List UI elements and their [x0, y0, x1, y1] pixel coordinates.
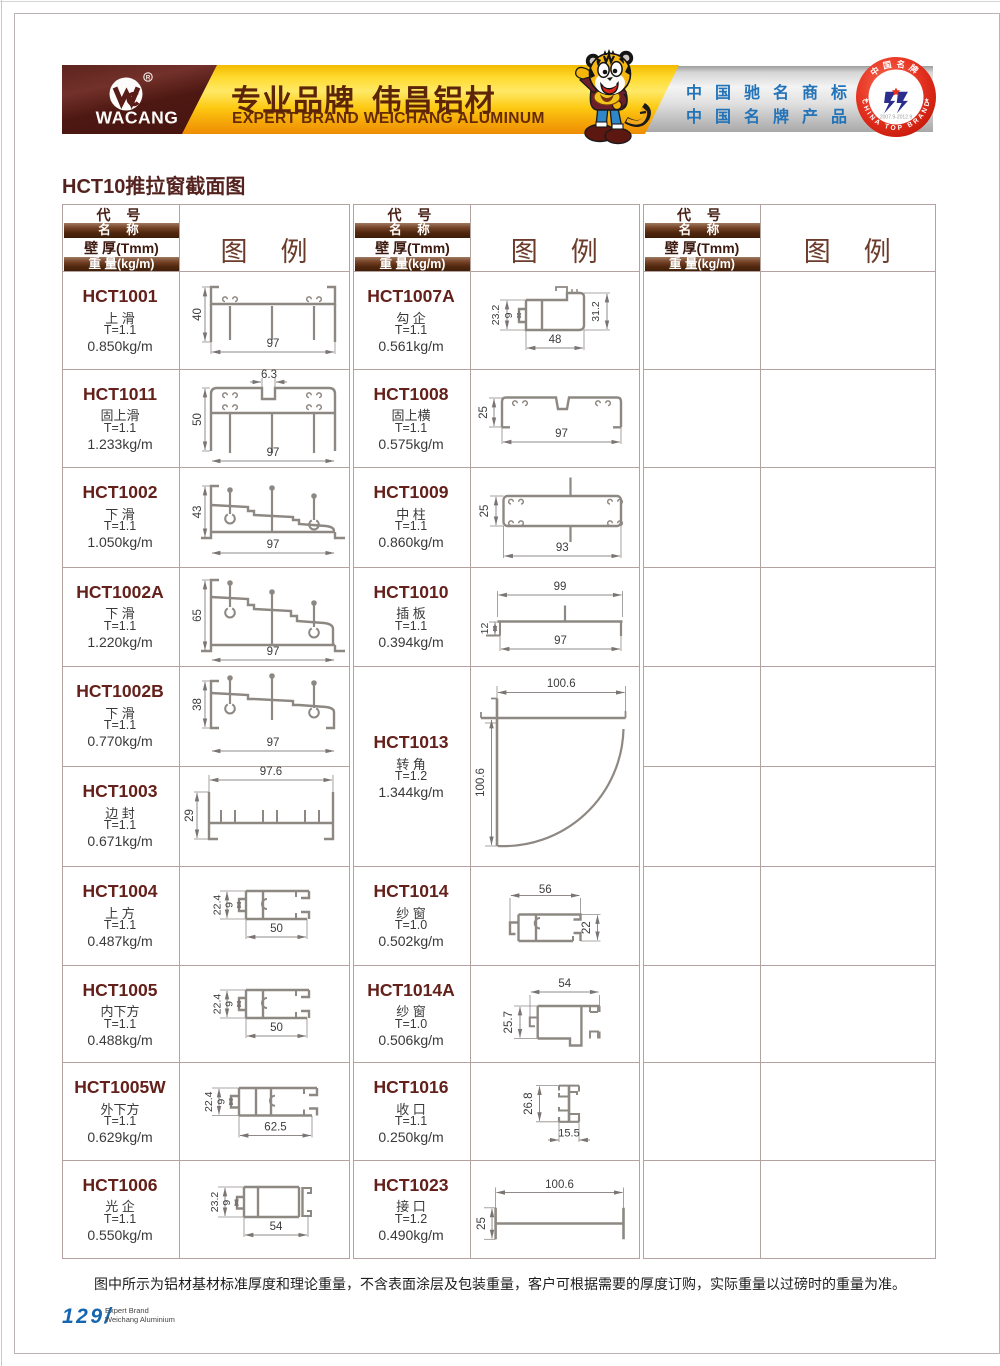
svg-text:97: 97: [267, 447, 280, 459]
svg-text:54: 54: [558, 978, 571, 990]
svg-text:2007.9-2012.9: 2007.9-2012.9: [880, 115, 912, 121]
svg-text:100.6: 100.6: [545, 1179, 574, 1191]
svg-text:15.5: 15.5: [558, 1128, 579, 1140]
svg-text:25: 25: [476, 1217, 488, 1230]
svg-text:62.5: 62.5: [264, 1122, 286, 1134]
svg-text:97: 97: [267, 338, 280, 350]
svg-text:40: 40: [192, 308, 204, 321]
svg-text:97: 97: [554, 635, 567, 647]
svg-text:31.2: 31.2: [590, 301, 602, 322]
svg-text:★: ★: [864, 97, 869, 104]
svg-text:WACANG: WACANG: [96, 108, 179, 128]
svg-text:50: 50: [270, 1022, 283, 1034]
svg-text:22.4: 22.4: [203, 1091, 215, 1112]
svg-text:R: R: [146, 75, 151, 82]
svg-text:★: ★: [924, 97, 929, 104]
svg-text:56: 56: [539, 884, 552, 896]
svg-text:6.3: 6.3: [261, 369, 277, 381]
svg-text:97: 97: [267, 646, 280, 658]
svg-text:97: 97: [267, 737, 280, 749]
svg-text:23.2: 23.2: [209, 1191, 221, 1212]
svg-text:50: 50: [270, 923, 283, 935]
svg-text:26.8: 26.8: [523, 1093, 535, 1115]
svg-text:23.2: 23.2: [490, 305, 502, 326]
svg-text:48: 48: [549, 334, 562, 346]
svg-text:9: 9: [224, 902, 236, 908]
svg-text:54: 54: [270, 1221, 283, 1233]
svg-text:22.4: 22.4: [212, 993, 224, 1014]
svg-text:100.6: 100.6: [475, 768, 487, 797]
svg-text:100.6: 100.6: [547, 678, 576, 690]
svg-text:22: 22: [581, 921, 593, 934]
svg-text:25: 25: [478, 406, 490, 419]
svg-text:9: 9: [221, 1199, 233, 1205]
svg-text:25: 25: [479, 505, 491, 518]
svg-text:38: 38: [192, 698, 204, 711]
svg-text:9: 9: [216, 1099, 228, 1105]
svg-text:97: 97: [267, 539, 280, 551]
svg-text:9: 9: [224, 1000, 236, 1006]
svg-text:99: 99: [554, 581, 567, 593]
svg-text:12: 12: [479, 622, 491, 634]
svg-text:9: 9: [503, 312, 515, 318]
svg-text:29: 29: [184, 809, 196, 822]
svg-text:65: 65: [192, 609, 204, 622]
svg-text:97.6: 97.6: [260, 766, 282, 778]
svg-text:22.4: 22.4: [212, 895, 224, 916]
svg-text:93: 93: [556, 542, 569, 554]
svg-text:25.7: 25.7: [503, 1011, 515, 1033]
svg-text:97: 97: [555, 428, 568, 440]
svg-text:43: 43: [192, 506, 204, 519]
svg-text:50: 50: [192, 413, 204, 426]
